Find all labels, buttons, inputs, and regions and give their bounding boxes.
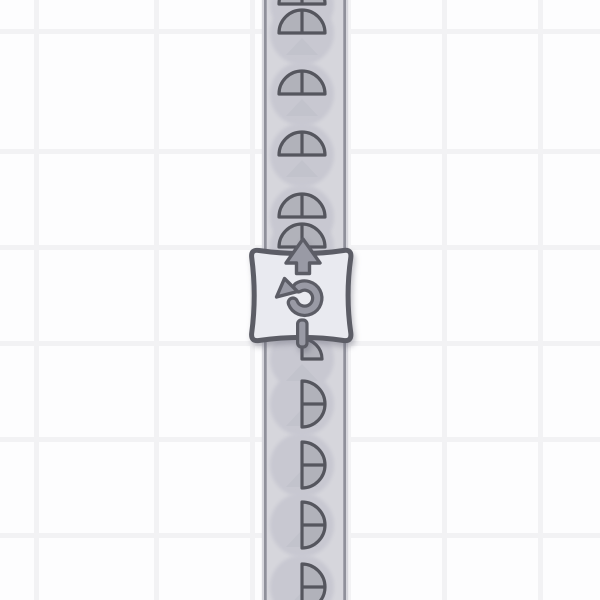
rotator-marker[interactable] bbox=[252, 239, 351, 347]
marker-pole-icon bbox=[298, 320, 307, 347]
game-viewport bbox=[0, 0, 600, 600]
scene-layer bbox=[0, 0, 600, 600]
